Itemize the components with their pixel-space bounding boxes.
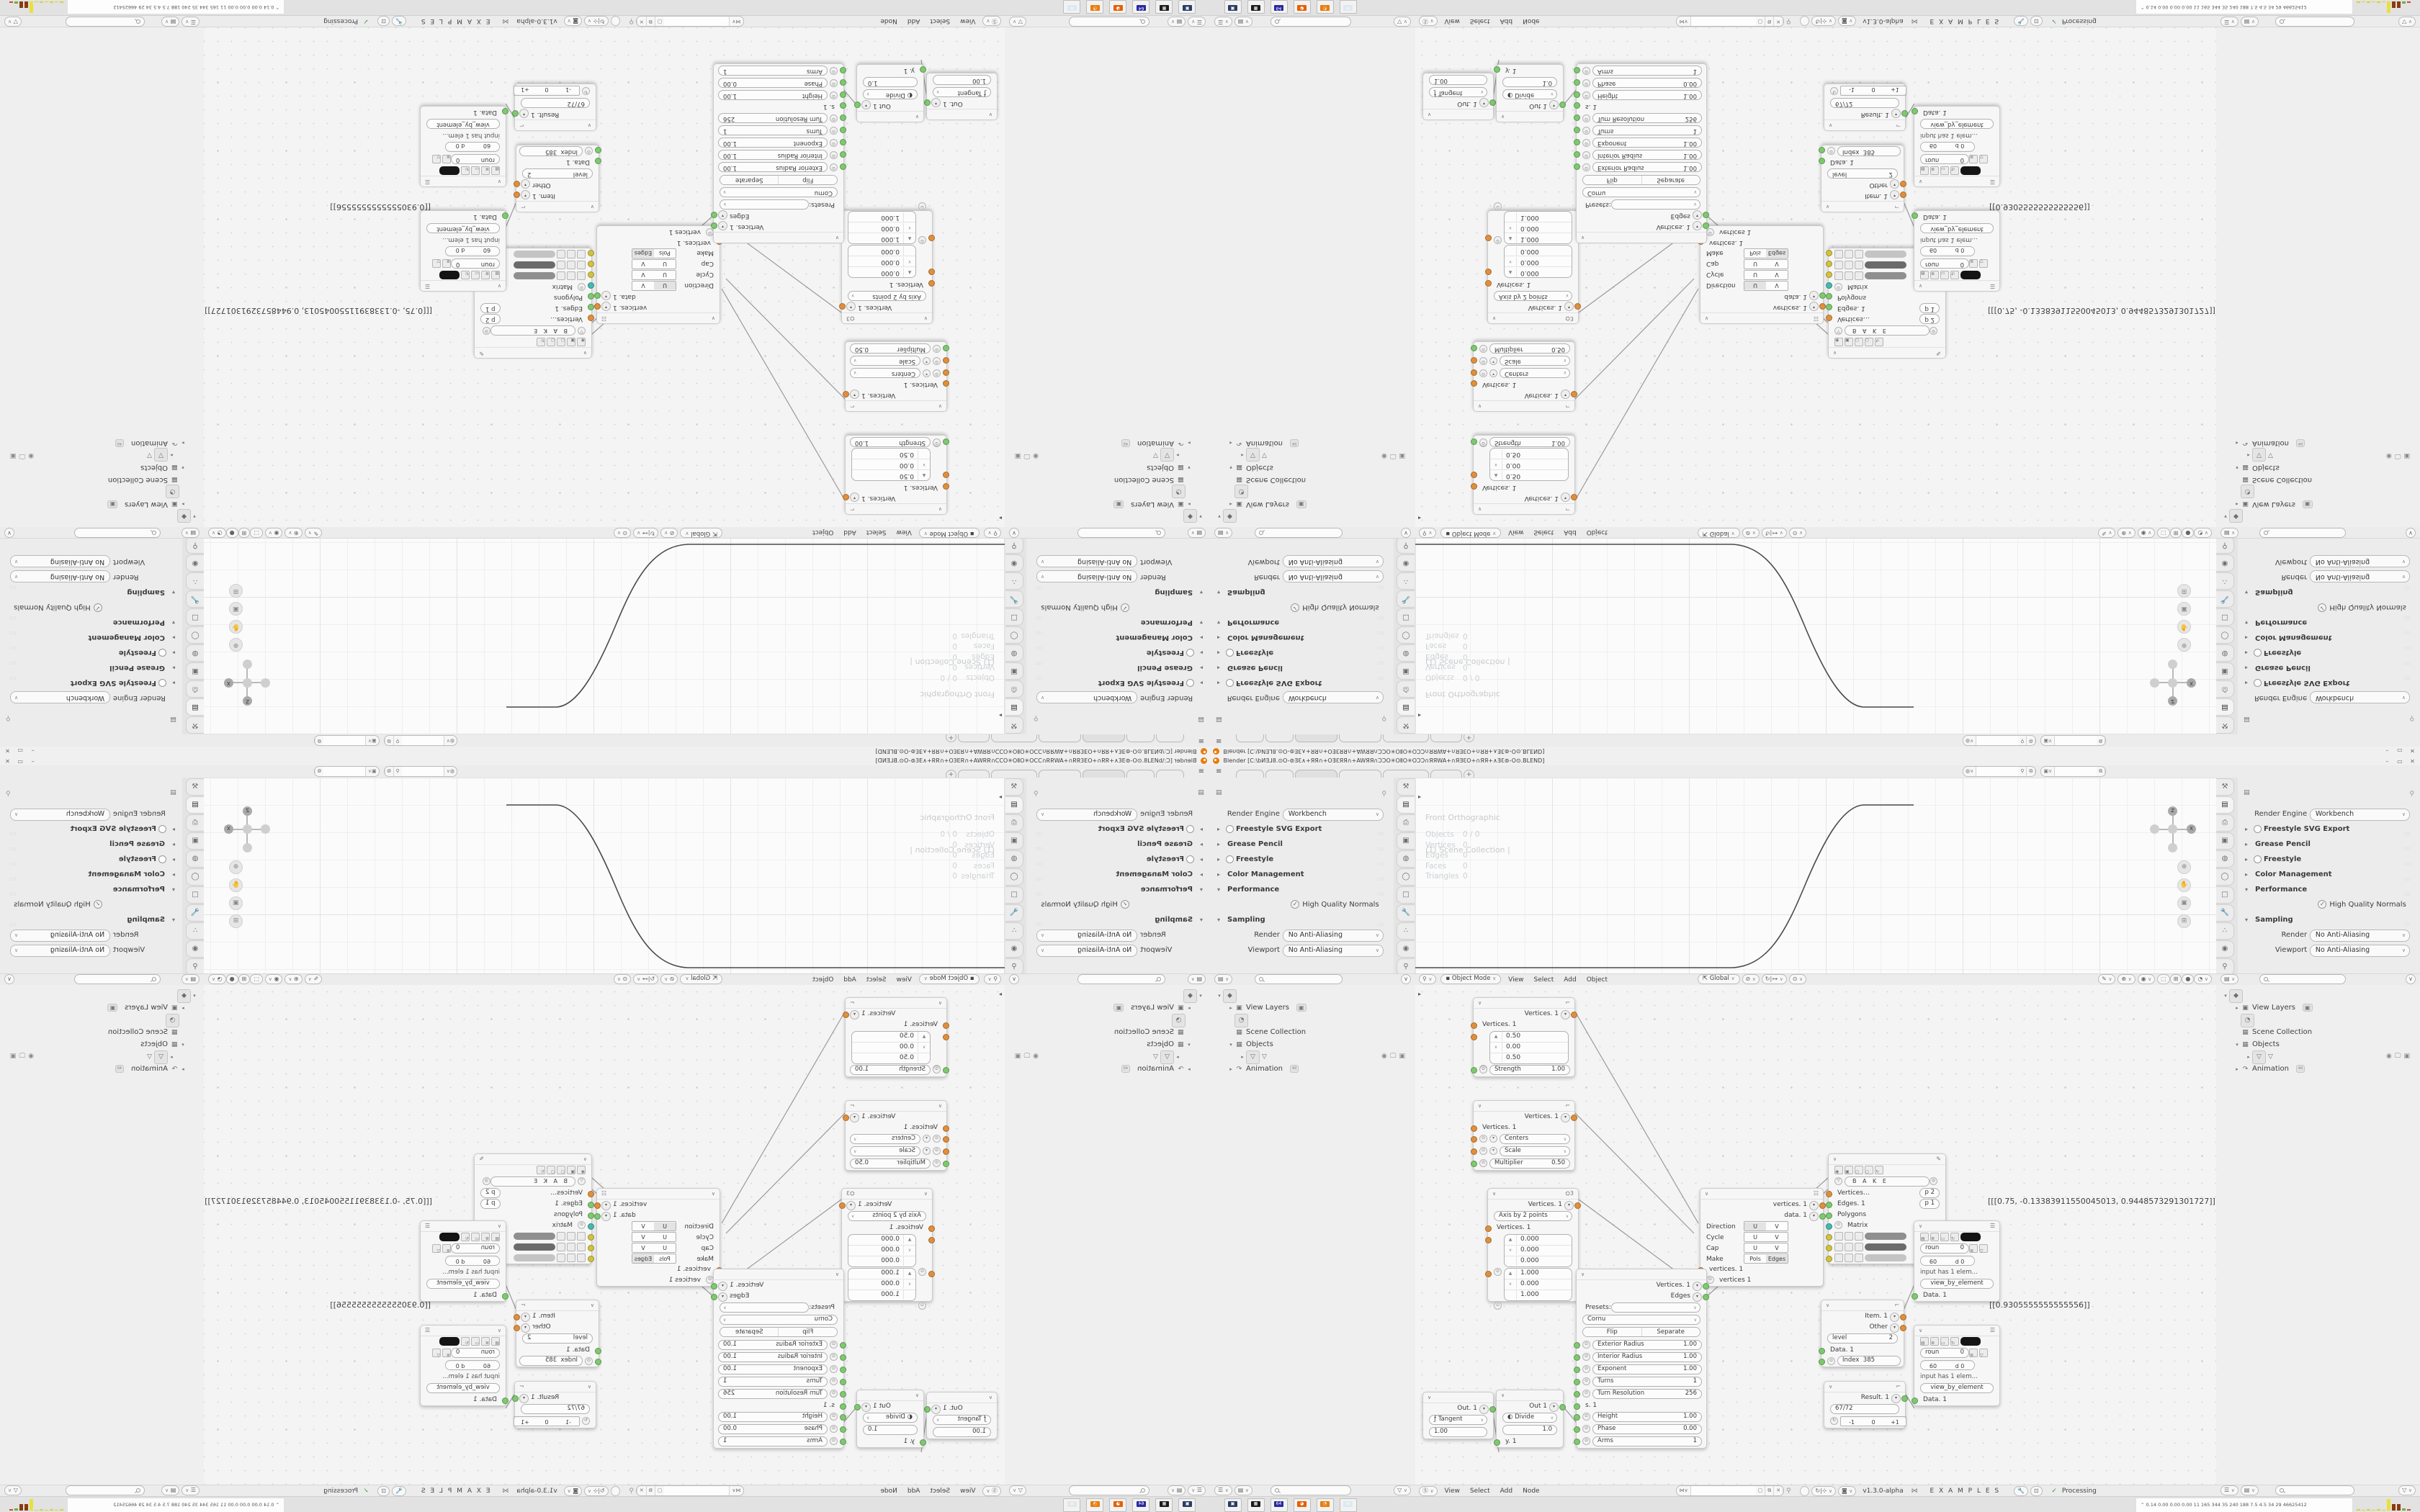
zoom-icon[interactable]: ⊕ [229, 638, 243, 652]
socket-green[interactable] [920, 66, 926, 73]
id-selector-1[interactable]: ◍∨⚲⧉ [1963, 766, 2036, 777]
axis-gizmo[interactable]: Z X [224, 806, 270, 852]
number-field[interactable]: Interior Radius1.00 [1592, 150, 1702, 161]
section-arrow-icon[interactable]: ▸ [2245, 822, 2248, 837]
section-arrow-icon[interactable]: ▸ [1200, 675, 1203, 690]
gizmo-x-axis[interactable]: X [2187, 824, 2196, 834]
collapse-icon[interactable]: ∨ [498, 1326, 501, 1336]
display-mode-button[interactable]: ☰ ∨ [1188, 1485, 1206, 1495]
section-header[interactable]: Freestyle [2264, 852, 2301, 867]
section-arrow-icon[interactable]: ▾ [1217, 615, 1220, 630]
socket-orange[interactable] [943, 1022, 949, 1029]
dropdown[interactable]: Cornu∨ [1582, 1315, 1700, 1325]
cap-toggle[interactable]: UV [1744, 259, 1788, 269]
scene-tab-icon[interactable]: ◍ [186, 850, 204, 868]
outliner-item[interactable]: ▸▽▽◉🖵▣ [0, 1050, 204, 1063]
funnel-icon[interactable]: ▽ ∨ [4, 1485, 22, 1495]
node-out-divide[interactable]: ∨Out 1▾◐ Divide∨1.0y. 1 [1496, 64, 1564, 122]
socket-orange[interactable] [928, 1237, 935, 1243]
node-axis-by-2-points[interactable]: ∨⛭3Vertices. 1▾Axis by 2 points∨Vertices… [841, 1188, 933, 1302]
socket-green[interactable] [943, 438, 949, 445]
constraints-tab-icon[interactable]: ⚲ [1397, 536, 1415, 554]
shading-solid-icon[interactable]: ⊞ [238, 528, 251, 538]
collapse-icon[interactable]: ∨ [1833, 1154, 1837, 1164]
socket-orange[interactable] [1826, 315, 1832, 321]
collapse-icon[interactable]: ∨ [1428, 109, 1431, 120]
scene-icon[interactable]: ◍∨ [444, 767, 457, 776]
restore-button[interactable]: ▭ [16, 747, 25, 754]
chevron-down-icon[interactable]: ∨ [1401, 528, 1411, 538]
collapse-icon[interactable]: ∨ [1705, 1189, 1708, 1199]
node-grid-make[interactable]: ∨☷vertices. 1▾data. 1▾DirectionUVCycleUV… [1700, 225, 1824, 324]
socket-green[interactable] [1819, 158, 1825, 164]
render-dropdown[interactable]: No Anti-Aliasing∨ [10, 930, 110, 942]
socket-green[interactable] [840, 1403, 846, 1410]
viewport-dropdown[interactable]: No Anti-Aliasing∨ [10, 555, 110, 567]
section-arrow-icon[interactable]: ▸ [1217, 822, 1220, 837]
outliner-item[interactable]: ▸▽▽◉🖵▣ [0, 449, 204, 462]
outliner-item[interactable]: ▾◆ [1210, 510, 1415, 523]
output-menu-icon[interactable]: ▾ [861, 100, 871, 109]
output-menu-icon[interactable]: ▾ [1693, 1282, 1702, 1291]
outliner-item-objects[interactable]: ▾▦Objects [1210, 1038, 1415, 1050]
caret-icon[interactable]: ⌃ [2141, 1502, 2144, 1508]
index-stepper[interactable]: -10+1 [1840, 86, 1906, 96]
filter-type-button[interactable]: ▤ ∨ [1168, 1485, 1186, 1495]
socket-green[interactable] [1574, 1354, 1580, 1361]
value-pill[interactable]: Index 385 [1837, 146, 1901, 156]
render-tab-icon[interactable]: ▤ [1397, 796, 1415, 814]
section-arrow-icon[interactable]: ▸ [1217, 852, 1220, 867]
dropdown[interactable]: Axis by 2 points∨ [1494, 1211, 1572, 1221]
number-field[interactable]: Phase0.00 [718, 78, 828, 89]
shield-icon[interactable]: ▢ [1756, 1486, 1766, 1495]
socket-orange[interactable] [843, 494, 849, 500]
node-cornu-spiral[interactable]: ∨Vertices. 1▾Edges▾Presets:∨Cornu∨FlipSe… [1576, 1269, 1707, 1449]
value-pill[interactable]: p 2 [1919, 1188, 1940, 1198]
node-view-by-element-a[interactable]: ∨☰▤≣▭↻roun0≣▽60d 0input has 1 elem…view_… [420, 1220, 506, 1302]
socket-green[interactable] [943, 1067, 949, 1074]
render-tab-icon[interactable]: ▤ [1005, 698, 1023, 716]
object-tab-icon[interactable]: □ [1397, 608, 1415, 626]
node-result-67-72[interactable]: ∨⌐Result. 1▾67/72↻-10+1 [1824, 84, 1906, 131]
socket-green[interactable] [1574, 139, 1580, 145]
socket-orange[interactable] [1471, 1136, 1477, 1143]
output-tab-icon[interactable]: ⎙ [2216, 814, 2234, 832]
socket-orange[interactable] [943, 1034, 949, 1040]
number-field[interactable]: Arms1 [718, 1436, 828, 1446]
section-arrow-icon[interactable]: ▾ [1217, 912, 1220, 927]
socket-green[interactable] [1703, 1283, 1709, 1290]
particles-tab-icon[interactable]: ∴ [186, 572, 204, 590]
close-icon[interactable]: ✕ [637, 17, 646, 26]
socket-orange[interactable] [943, 483, 949, 490]
node-vertices-multiplier[interactable]: ∨⌐Vertices. 1▾Vertices. 1⊙▾Centers∨⊙▾Sca… [1473, 1100, 1575, 1171]
render-tab-icon[interactable]: ▤ [1397, 698, 1415, 716]
vector-field[interactable]: ▲0.50∨0.000.50 [1489, 1031, 1569, 1064]
search-input[interactable] [1077, 528, 1165, 538]
blender-taskbar-icon[interactable]: ◔ [1086, 0, 1103, 14]
section-arrow-icon[interactable]: ▸ [1200, 630, 1203, 645]
section-header[interactable]: Grease Pencil [1137, 837, 1193, 852]
output-menu-icon[interactable]: ▾ [1809, 1201, 1819, 1210]
shading-rendered-icon[interactable]: ◔ ∨ [2194, 528, 2212, 538]
node-sidebar-toggle-icon[interactable]: ▸ [999, 515, 1002, 521]
socket-green[interactable] [711, 1294, 717, 1300]
gizmo-minus-x[interactable] [2150, 678, 2159, 688]
output-menu-icon[interactable]: ▾ [1479, 1405, 1489, 1414]
socket-yellow[interactable] [588, 1245, 594, 1251]
funnel-icon[interactable]: ▽ ∨ [2398, 17, 2416, 27]
new-icon[interactable]: ⧉ [315, 767, 323, 776]
pin-icon[interactable]: ⚲ [2018, 767, 2027, 776]
outliner-item-view-layers[interactable]: ▸▣View Layers▣ [1210, 1002, 1415, 1014]
id-selector-1[interactable]: ◍∨⚲⧉ [384, 735, 457, 746]
restore-button[interactable]: ▭ [2395, 747, 2404, 754]
collapse-icon[interactable]: ∨ [835, 1269, 839, 1279]
camera-icon[interactable]: ▣ [2177, 602, 2191, 616]
menu-view[interactable]: View [1508, 527, 1523, 538]
socket-green[interactable] [594, 292, 601, 299]
number-field[interactable]: Turns1 [718, 1377, 828, 1387]
socket-orange[interactable] [943, 1125, 949, 1132]
text-field[interactable]: 1.00 [933, 1427, 991, 1437]
vector-field[interactable]: ▲0.50∨0.000.50 [851, 1031, 931, 1064]
menu-view[interactable]: View [897, 527, 912, 538]
new-icon[interactable]: ⧉ [2097, 736, 2105, 745]
socket-orange[interactable] [1485, 1237, 1492, 1243]
zoom-icon[interactable]: ⊕ [229, 860, 243, 874]
object-tab-icon[interactable]: □ [2216, 608, 2234, 626]
socket-green[interactable] [1703, 222, 1709, 229]
socket-orange[interactable] [843, 1115, 849, 1121]
socket-orange[interactable] [514, 1314, 520, 1320]
collapse-icon[interactable]: ∨ [1428, 1392, 1431, 1403]
number-field[interactable]: Turns1 [1592, 1377, 1702, 1387]
menu-view[interactable]: View [1508, 975, 1523, 986]
node-vertices-strength[interactable]: ∨⌐Vertices. 1▾Vertices. 1▲0.50∨0.000.50⊙… [845, 435, 947, 515]
view-layer-tab-icon[interactable]: ▣ [186, 832, 204, 850]
output-menu-icon[interactable]: ▾ [861, 1403, 871, 1412]
number-field[interactable]: Phase0.00 [1592, 78, 1702, 89]
output-menu-icon[interactable]: ▾ [846, 302, 856, 311]
render-dropdown[interactable]: No Anti-Aliasing∨ [1283, 570, 1384, 582]
collapse-icon[interactable]: ∨ [835, 233, 839, 243]
tree-name-field[interactable] [664, 17, 729, 26]
show-overlays-icon[interactable]: ◉ ∨ [2138, 974, 2156, 984]
outliner-item-animation[interactable]: ▸↷Animation⁴² [1210, 437, 1415, 449]
modifiers-tab-icon[interactable]: 🔧 [1397, 590, 1415, 608]
socket-green[interactable] [943, 345, 949, 351]
outliner-search-input[interactable] [2275, 1485, 2354, 1495]
close-button[interactable]: ✕ [2408, 747, 2417, 754]
scene-icon[interactable]: ◍∨ [1963, 767, 1976, 776]
tag-pill[interactable]: view_by_element [1920, 224, 1994, 234]
direction-toggle[interactable]: UV [632, 281, 676, 291]
number-field[interactable]: Interior Radius1.00 [718, 1352, 828, 1362]
node-tree-selector[interactable]: ⋈∨ ▢ ⧉ ✕ [636, 16, 744, 27]
section-header[interactable]: Grease Pencil [1227, 837, 1283, 852]
section-arrow-icon[interactable]: ▸ [172, 822, 175, 837]
section-arrow-icon[interactable]: ▸ [1217, 675, 1220, 690]
value-pill[interactable]: p 2 [480, 314, 501, 324]
section-arrow-icon[interactable]: ▸ [1200, 660, 1203, 675]
output-menu-icon[interactable]: ▾ [1693, 1292, 1702, 1302]
number-field[interactable]: 1.0 [863, 78, 918, 88]
overlays-icon[interactable]: ✎ ∨ [305, 528, 322, 538]
menu-select[interactable]: Select [1533, 975, 1554, 986]
attribute-bar[interactable] [1865, 1254, 1906, 1261]
notepad-taskbar-icon[interactable]: ≡ [1340, 0, 1357, 14]
outliner-item[interactable]: ▾◆ [1005, 510, 1210, 523]
node-out-divide[interactable]: ∨Out 1▾◐ Divide∨1.0y. 1 [856, 1390, 924, 1448]
output-menu-icon[interactable]: ▾ [601, 1201, 611, 1210]
direction-toggle[interactable]: UV [1744, 1221, 1788, 1231]
section-arrow-icon[interactable]: ▸ [2245, 837, 2248, 852]
section-header[interactable]: Grease Pencil [109, 660, 165, 675]
grid-icon[interactable]: ⊞ [229, 584, 243, 598]
cycle-toggle[interactable]: UV [1744, 1232, 1788, 1242]
gizmo-x-axis[interactable]: X [224, 678, 233, 688]
value-pair[interactable]: 60d 0 [445, 1360, 500, 1370]
collapse-icon[interactable]: ∨ [1829, 120, 1832, 130]
shading-material-icon[interactable]: ● [226, 974, 238, 984]
number-field[interactable]: Turn Resolution256 [1592, 114, 1702, 124]
node-view-by-element-b[interactable]: ∨☰▤≣▭↻roun0≣▽60d 0input has 1 elem…view_… [1914, 106, 2000, 187]
collapse-icon[interactable]: ∨ [1492, 1189, 1496, 1199]
collapse-icon[interactable]: ∨ [498, 176, 501, 186]
object-tab-icon[interactable]: □ [1397, 886, 1415, 904]
display-mode-button[interactable]: ☰ ∨ [2220, 17, 2238, 27]
socket-orange[interactable] [1574, 303, 1581, 310]
socket-green[interactable] [1489, 99, 1496, 106]
green-screen-taskbar-icon[interactable]: ▦ [1155, 1498, 1173, 1512]
socket-green[interactable] [512, 110, 519, 117]
pc-monitor-taskbar-icon[interactable]: ▣ [1178, 0, 1196, 14]
id-name-field[interactable] [402, 767, 444, 776]
menu-view[interactable]: View [897, 975, 912, 986]
minimize-button[interactable]: – [2383, 747, 2392, 754]
chevron-down-icon[interactable]: ∨ [2406, 974, 2416, 984]
gizmo-minus-z[interactable] [243, 843, 252, 852]
blank-toggle[interactable] [611, 17, 620, 27]
section-header[interactable]: Color Management [1116, 630, 1193, 645]
section-header[interactable]: Freestyle SVG Export [1236, 822, 1322, 837]
display-mode-button[interactable]: ☰ ∨ [181, 17, 200, 27]
gizmos-icon[interactable]: ⊕ ∨ [284, 528, 302, 538]
new-icon[interactable]: ⧉ [2027, 736, 2035, 745]
toolbar-toggle-icon[interactable]: ▸ [999, 712, 1002, 719]
outliner-item[interactable]: ◔ [1210, 486, 1415, 498]
outliner-search-input[interactable] [1069, 17, 1149, 27]
output-menu-icon[interactable]: ▾ [1479, 98, 1489, 107]
section-arrow-icon[interactable]: ▾ [2245, 585, 2248, 600]
falloff-icon[interactable]: ⊙ ∨ [614, 528, 631, 538]
socket-green[interactable] [1819, 292, 1826, 299]
render-tab-icon[interactable]: ▤ [2216, 698, 2234, 716]
gizmos-icon[interactable]: ⊕ ∨ [2117, 974, 2135, 984]
outliner-item-objects[interactable]: ▾▦Objects [1210, 462, 1415, 474]
close-icon[interactable]: ✕ [1774, 17, 1783, 26]
settings-icon[interactable]: 🔧 [2014, 17, 2028, 27]
pin-icon[interactable]: ⚲ [1034, 714, 1039, 721]
viewport-3d[interactable]: ▸ Front Orthographic (1) Scene Collectio… [1415, 539, 2216, 734]
pin-icon[interactable]: ⚲ [393, 736, 402, 745]
gizmo-center[interactable] [2168, 824, 2177, 834]
collapse-icon[interactable]: ∨ [591, 202, 594, 212]
snap-magnet-icon[interactable]: ⊘ ∨ [660, 528, 678, 538]
pc-monitor-taskbar-icon[interactable]: ▣ [1224, 1498, 1242, 1512]
viewport-3d[interactable]: ▸ Front Orthographic (1) Scene Collectio… [1415, 778, 2216, 973]
tool-tab-icon[interactable]: ⚒ [186, 778, 204, 796]
dropdown[interactable]: ƒ Tangent∨ [933, 1415, 991, 1425]
modifiers-tab-icon[interactable]: 🔧 [2216, 590, 2234, 608]
socket-green[interactable] [588, 304, 594, 310]
section-radio[interactable] [158, 825, 166, 833]
floppy-64-taskbar-icon[interactable]: 64 [1132, 1498, 1149, 1512]
section-arrow-icon[interactable]: ▸ [1200, 822, 1203, 837]
chevron-down-icon[interactable]: ∨ [4, 528, 14, 538]
collapse-icon[interactable]: ∨ [1478, 1101, 1482, 1111]
menu-view[interactable]: View [1445, 1486, 1460, 1497]
copy-icon[interactable]: ⧉ [1765, 17, 1774, 26]
output-menu-icon[interactable]: ▾ [1549, 1403, 1559, 1412]
section-header[interactable]: Color Management [1227, 630, 1304, 645]
number-field[interactable]: Multiplier0.50 [1489, 344, 1570, 354]
socket-orange[interactable] [943, 380, 949, 387]
gizmo-minus-x[interactable] [261, 678, 270, 688]
socket-green[interactable] [1471, 1067, 1477, 1074]
number-field[interactable]: Multiplier0.50 [1489, 1158, 1570, 1169]
physics-tab-icon[interactable]: ◉ [1005, 940, 1023, 958]
render-dropdown[interactable]: No Anti-Aliasing∨ [10, 570, 110, 582]
value-pill[interactable]: p 1 [480, 1199, 501, 1209]
socket-green[interactable] [588, 1202, 594, 1208]
menu-add[interactable]: Add [1500, 15, 1512, 26]
name-pill[interactable]: roun0 [1920, 155, 1969, 165]
shading-rendered-icon[interactable]: ◔ ∨ [208, 974, 226, 984]
socket-green[interactable] [840, 67, 846, 73]
socket-orange[interactable] [1571, 1012, 1577, 1018]
checkbox[interactable]: ✓ [1291, 900, 1299, 909]
output-menu-icon[interactable]: ▾ [1890, 1323, 1899, 1333]
output-menu-icon[interactable]: ▾ [718, 1282, 727, 1291]
vector-field[interactable]: ▲1.000∨0.0001.000 [1504, 1268, 1572, 1301]
value-pill[interactable]: p 2 [1919, 314, 1940, 324]
collapse-icon[interactable]: ∨ [938, 504, 942, 514]
output-menu-icon[interactable]: ▾ [846, 1201, 856, 1210]
socket-green[interactable] [1471, 438, 1477, 445]
shading-solid-icon[interactable]: ⊞ [2170, 528, 2182, 538]
collapse-icon[interactable]: ∨ [989, 1392, 992, 1403]
outliner-item[interactable]: ▸▽▽◉🖵▣ [2216, 449, 2420, 462]
node-editor-icon[interactable]: Ⓢ ∨ [982, 17, 1001, 27]
section-header[interactable]: Grease Pencil [109, 837, 165, 852]
filter-type-button[interactable]: ▤ ∨ [2241, 1485, 2259, 1495]
dropdown[interactable]: Cornu∨ [1582, 188, 1700, 198]
constraints-tab-icon[interactable]: ⚲ [1005, 536, 1023, 554]
id-name-field[interactable] [1976, 767, 2018, 776]
section-header[interactable]: Freestyle SVG Export [71, 822, 156, 837]
world-tab-icon[interactable]: ◯ [1005, 868, 1023, 886]
section-header[interactable]: Freestyle SVG Export [1236, 675, 1322, 690]
shield-icon[interactable]: ▢ [655, 17, 665, 26]
socket-green[interactable] [1574, 1439, 1580, 1445]
text-field[interactable]: 1.00 [1429, 1427, 1487, 1437]
socket-green[interactable] [840, 139, 846, 145]
vector-field[interactable]: ▲0.000∨0.0000.000 [1504, 1234, 1572, 1267]
socket-orange[interactable] [1471, 472, 1477, 478]
outliner-item-scene-collection[interactable]: ▦Scene Collection [0, 474, 204, 486]
menu-node[interactable]: Node [1523, 1486, 1540, 1497]
attribute-bar[interactable] [1865, 1233, 1906, 1240]
socket-green[interactable] [588, 1212, 594, 1219]
id-name-field[interactable] [2055, 767, 2097, 776]
index-stepper[interactable]: -10+1 [1840, 1416, 1906, 1426]
gizmo-z-axis[interactable]: Z [243, 806, 252, 816]
visibility-icons[interactable]: ◉🖵▣ [1381, 449, 1408, 462]
notepad-taskbar-icon[interactable]: ≡ [1063, 0, 1080, 14]
outliner-item[interactable]: ◔ [1005, 486, 1210, 498]
output-menu-icon[interactable]: ▾ [1809, 302, 1819, 311]
pin-icon[interactable]: ⚲ [1786, 17, 1791, 24]
socket-green[interactable] [1574, 1342, 1580, 1349]
socket-green[interactable] [1901, 110, 1908, 117]
node-out-tangent[interactable]: ∨Out. 1▾ƒ Tangent∨1.00 [1422, 1392, 1494, 1439]
socket-green[interactable] [840, 1354, 846, 1361]
collapse-icon[interactable]: ∨ [583, 348, 587, 358]
tag-pill[interactable]: view_by_element [426, 1383, 500, 1393]
render-dropdown[interactable]: No Anti-Aliasing∨ [2310, 930, 2410, 942]
node-editor-icon[interactable]: Ⓢ ∨ [982, 1486, 1001, 1496]
socket-yellow[interactable] [588, 1256, 594, 1262]
section-header[interactable]: Color Management [2255, 630, 2332, 645]
node-view-by-element-b[interactable]: ∨☰▤≣▭↻roun0≣▽60d 0input has 1 elem…view_… [420, 106, 506, 187]
caret-icon[interactable]: ⌃ [276, 1502, 279, 1508]
section-radio[interactable] [1186, 649, 1194, 657]
zoom-icon[interactable]: ⊕ [2177, 638, 2191, 652]
socket-green[interactable] [595, 147, 601, 153]
render-target-icon[interactable]: ◙ ∨ [564, 17, 582, 27]
output-tab-icon[interactable]: ⎙ [2216, 680, 2234, 698]
value-pair[interactable]: 60d 0 [1920, 247, 1975, 257]
socket-orange[interactable] [1471, 483, 1477, 490]
socket-yellow[interactable] [588, 1234, 594, 1241]
outliner-item[interactable]: ▸▽▽◉🖵▣ [1210, 449, 1415, 462]
number-field[interactable]: Interior Radius1.00 [718, 150, 828, 161]
toolbar-toggle-icon[interactable]: ▸ [999, 793, 1002, 800]
socket-orange[interactable] [843, 391, 849, 397]
pin-icon[interactable]: ⚲ [6, 791, 11, 798]
socket-orange[interactable] [1471, 1148, 1477, 1155]
gizmos-icon[interactable]: ⊕ ∨ [284, 974, 302, 984]
socket-green[interactable] [854, 102, 861, 108]
snap-toggle-icon[interactable]: ↻|⊹ ∨ [584, 1486, 609, 1496]
toggle-buttons[interactable]: FlipSeparate [1582, 175, 1700, 185]
tool-tab-icon[interactable]: ⚒ [2216, 716, 2234, 734]
filter-type-button[interactable]: ▤ ∨ [1168, 17, 1186, 27]
green-screen-taskbar-icon[interactable]: ▦ [1247, 1498, 1265, 1512]
socket-green[interactable] [1471, 1161, 1477, 1167]
render-dropdown[interactable]: No Anti-Aliasing∨ [1283, 930, 1384, 942]
outliner-item-objects[interactable]: ▾▦Objects [2216, 462, 2420, 474]
display-mode-button[interactable]: ☰ ∨ [1214, 1485, 1232, 1495]
outliner-item[interactable]: ◔ [1210, 1014, 1415, 1026]
outliner-item-animation[interactable]: ▸↷Animation⁴² [1005, 437, 1210, 449]
overlays-icon[interactable]: ✎ ∨ [2098, 528, 2115, 538]
dropdown[interactable]: Axis by 2 points∨ [848, 292, 926, 302]
node-item-level-index[interactable]: ∨⌐Item. 1▾Other▾level2Data. 1⊙Index 385 [516, 145, 599, 212]
